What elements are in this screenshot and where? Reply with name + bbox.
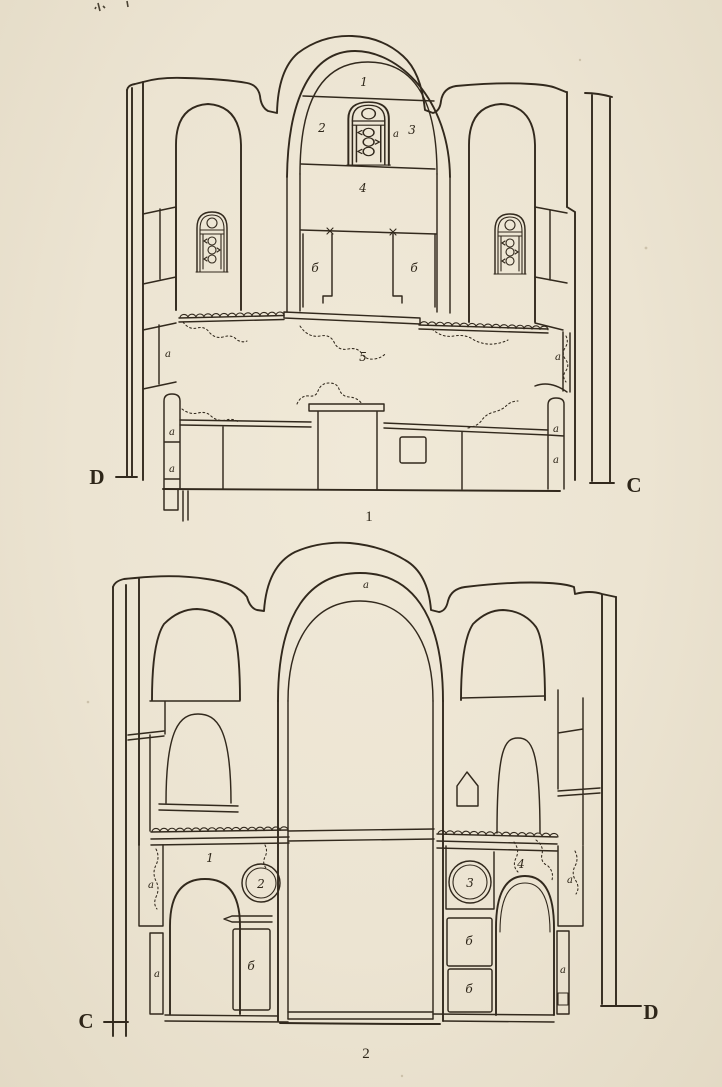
fig1-right-bay-arch: [469, 104, 535, 322]
fig1-altar-door: [309, 404, 384, 489]
fig2-pentagon-niche: [457, 772, 478, 806]
fig1-label-pilaster-left-a-upper: a: [169, 427, 175, 438]
fig2-right-outer-wall: [602, 595, 616, 1005]
fig2-floor: [280, 1023, 440, 1024]
fig2-label-door-right-lower: б: [465, 982, 473, 996]
fig2-section-letter-right: D: [643, 1000, 658, 1024]
fig2-label-gallery-left: 1: [206, 851, 214, 865]
fig1-roofline: [127, 36, 566, 113]
fig2-right-door-arch: [496, 876, 554, 1015]
fig2-left-bay-arch: [152, 609, 240, 700]
fig1-label-wall-left-a: a: [165, 349, 171, 360]
fig1-right-pilaster: [548, 398, 564, 489]
fig2-section-letter-left: C: [78, 1009, 93, 1033]
fig1-right-outer-wall: [567, 92, 610, 482]
fig2-lower-right: [433, 840, 583, 1022]
figure-2-section-drawing: a 1 2 3 4 б б б a a a a C D 2: [78, 543, 658, 1062]
fig2-left-outer-wall: [113, 579, 139, 1036]
fig2-label-vault-a: a: [363, 580, 369, 591]
fig1-scallop-cornice: [179, 312, 548, 333]
fig1-label-hall: 5: [359, 350, 367, 364]
fig2-central-arch-outer: [278, 573, 443, 701]
fig1-section-letter-right: C: [626, 473, 641, 497]
fig1-left-pilaster: [164, 394, 180, 510]
fig2-label-pier-right-a: a: [567, 875, 573, 886]
fig1-caption: 1: [365, 509, 373, 525]
fig2-label-medallion-right: 3: [466, 876, 474, 890]
fig1-label-pilaster-left-a-lower: a: [169, 464, 175, 475]
fig1-left-window-niche: [196, 212, 228, 272]
fig1-label-panel-left: 2: [317, 121, 326, 135]
fig2-left-gallery-niche: [166, 714, 231, 803]
fig1-label-lunette: 1: [360, 75, 368, 89]
fig1-label-window-a: a: [393, 129, 399, 140]
fig1-label-panel-below: 4: [358, 181, 367, 195]
fig1-label-door-flank-right: б: [410, 261, 418, 275]
fig1-left-bay-arch: [176, 104, 241, 310]
fig1-label-pilaster-right-a-lower: a: [553, 455, 559, 466]
fig1-floor: [163, 489, 560, 491]
fig1-left-outer-wall: [127, 82, 143, 480]
fig2-label-door-left: б: [247, 959, 255, 973]
fig2-label-pier-left-a: a: [148, 880, 154, 891]
figure-1-section-drawing: 1 2 3 a 4 б б 5 a a a a a a D C 1: [89, 36, 641, 525]
fig1-square-niche: [400, 437, 426, 463]
fig2-label-gallery-right: 4: [516, 857, 525, 871]
fig2-right-gallery-niche: [497, 738, 540, 833]
fig2-left-door-arch: [170, 879, 240, 1014]
fig2-lower-left: [139, 845, 288, 1022]
fig2-caption: 2: [362, 1046, 370, 1062]
fig1-right-window-niche: [494, 214, 526, 274]
fig2-label-medallion-left: 2: [256, 877, 265, 891]
plate-drawing: 1 2 3 a 4 б б 5 a a a a a a D C 1: [0, 0, 722, 1087]
fig2-label-strip-left-a: a: [154, 969, 160, 980]
fig1-label-wall-right-a: a: [555, 352, 561, 363]
fig1-section-letter-left: D: [89, 465, 104, 489]
fig2-central-arch-inner: [288, 601, 433, 701]
fig1-label-panel-right: 3: [408, 123, 416, 137]
fig1-central-window-niche: [347, 102, 390, 165]
fig1-central-arch-inner: [300, 62, 437, 174]
fig1-label-pilaster-right-a-upper: a: [553, 424, 559, 435]
fig2-label-strip-right-a: a: [560, 965, 566, 976]
fig1-damage-squiggles: [183, 322, 508, 359]
fig2-right-bay-arch: [461, 610, 545, 700]
scanned-plate-page: 1 2 3 a 4 б б 5 a a a a a a D C 1: [0, 0, 722, 1087]
fig1-central-arch-outer: [287, 51, 450, 177]
fig2-label-door-right-upper: б: [465, 934, 473, 948]
fig1-label-door-flank-left: б: [311, 261, 319, 275]
